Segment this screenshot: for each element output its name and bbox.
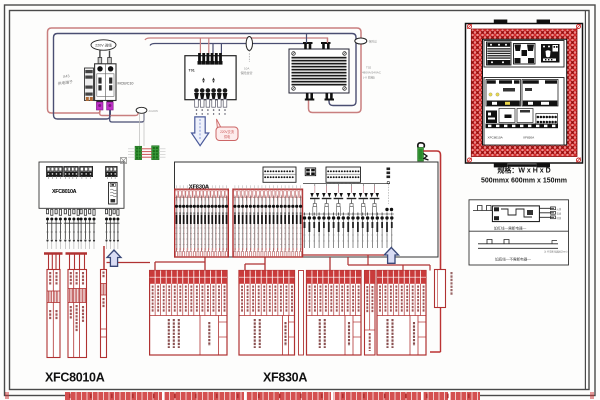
svg-text:T01: T01: [189, 69, 195, 73]
svg-text:220V交流: 220V交流: [220, 129, 235, 134]
svg-text:XF830A: XF830A: [523, 136, 535, 140]
svg-text:保险丝管: 保险丝管: [241, 70, 253, 75]
svg-text:MCB/C10: MCB/C10: [118, 82, 134, 86]
svg-text:220V 进线: 220V 进线: [95, 43, 112, 48]
svg-text:如红线—需断电器—: 如红线—需断电器—: [494, 225, 527, 230]
svg-text:XFC8010A: XFC8010A: [45, 371, 105, 385]
svg-text:XF830A: XF830A: [263, 371, 307, 385]
svg-text:500mmx 600mm x 150mm: 500mmx 600mm x 150mm: [481, 178, 567, 185]
svg-text:480VA/24VAC: 480VA/24VAC: [362, 71, 382, 75]
svg-text:供电: 供电: [224, 134, 231, 139]
svg-text:XFC8010A: XFC8010A: [52, 189, 77, 195]
svg-text:(-V 绕组): (-V 绕组): [363, 75, 375, 80]
svg-text:AC220V: AC220V: [149, 109, 159, 113]
svg-text:XFC8010A: XFC8010A: [488, 136, 504, 140]
svg-text:规格：W x H x D: 规格：W x H x D: [497, 166, 550, 175]
svg-text:如底线—不需断电器—: 如底线—不需断电器—: [495, 257, 531, 262]
svg-text:10A: 10A: [244, 67, 249, 71]
svg-text:T02: T02: [366, 66, 372, 70]
svg-text:保险丝: 保险丝: [369, 40, 378, 44]
